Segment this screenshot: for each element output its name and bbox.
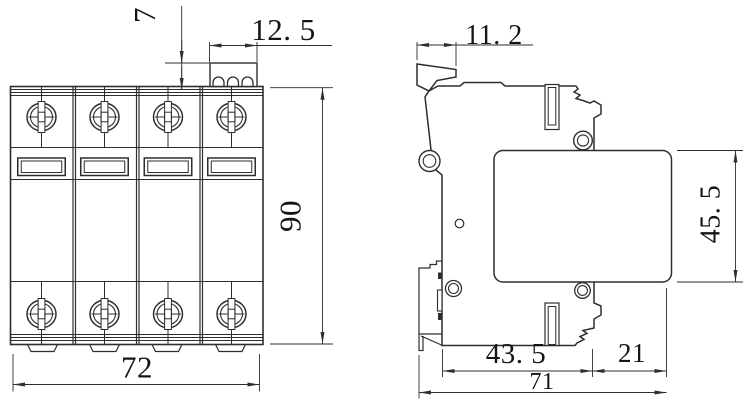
terminal-screw <box>90 299 119 330</box>
dim-label-12-5: 12. 5 <box>251 12 316 47</box>
dimension-side-module-height: 45. 5 <box>677 151 743 283</box>
dimension-side-base-depth: 43. 5 <box>443 338 593 377</box>
label-window <box>81 158 129 176</box>
clip-window <box>438 290 443 311</box>
dim-label-72: 72 <box>121 350 153 385</box>
module-body <box>494 151 672 283</box>
dim-label-7: 7 <box>127 7 162 23</box>
dimension-side-tab-width: 11. 2 <box>417 20 533 66</box>
terminal-screw <box>154 299 183 330</box>
din-rail-clip <box>419 261 442 351</box>
terminal-block <box>210 63 257 87</box>
pilot-hole <box>455 219 464 228</box>
clip-tooth <box>438 273 442 280</box>
dimension-front-width: 72 <box>13 350 260 392</box>
label-window <box>18 158 66 176</box>
dimension-front-block-height: 7 <box>127 6 210 90</box>
screw-boss <box>574 131 593 150</box>
dimension-side-overhang: 21 <box>593 288 667 377</box>
mounting-foot <box>90 345 120 352</box>
terminal-screw <box>90 102 119 133</box>
terminal-screw <box>27 102 56 133</box>
front-view: 7 12. 5 90 72 <box>11 6 334 392</box>
dim-label-90: 90 <box>273 200 308 232</box>
dim-label-21: 21 <box>618 338 646 368</box>
clip-tooth <box>438 313 442 320</box>
spd-dimension-drawing: 7 12. 5 90 72 <box>0 0 745 405</box>
terminal-screw <box>217 299 246 330</box>
terminal-screw <box>217 102 246 133</box>
mounting-foot <box>28 345 58 352</box>
screw-boss <box>575 283 591 299</box>
terminal-screw <box>154 102 183 133</box>
dim-label-43-5: 43. 5 <box>486 338 547 370</box>
dimension-front-block-width: 12. 5 <box>210 12 333 62</box>
mounting-foot <box>152 345 182 352</box>
screw-boss <box>419 151 440 172</box>
mounting-foot <box>216 345 246 352</box>
label-window <box>144 158 192 176</box>
dim-label-45-5: 45. 5 <box>696 185 727 244</box>
technical-drawing-canvas: 7 12. 5 90 72 <box>0 0 745 405</box>
label-window <box>208 158 256 176</box>
terminal-screw <box>27 299 56 330</box>
top-fixing-slot <box>545 85 559 130</box>
side-view: 11. 2 45. 5 43. 5 21 71 <box>417 20 743 399</box>
dimension-front-height: 90 <box>270 88 333 344</box>
screw-boss <box>446 281 462 297</box>
dim-label-71: 71 <box>530 369 555 395</box>
bottom-fixing-slot <box>545 303 559 346</box>
dim-label-11-2: 11. 2 <box>465 20 522 51</box>
